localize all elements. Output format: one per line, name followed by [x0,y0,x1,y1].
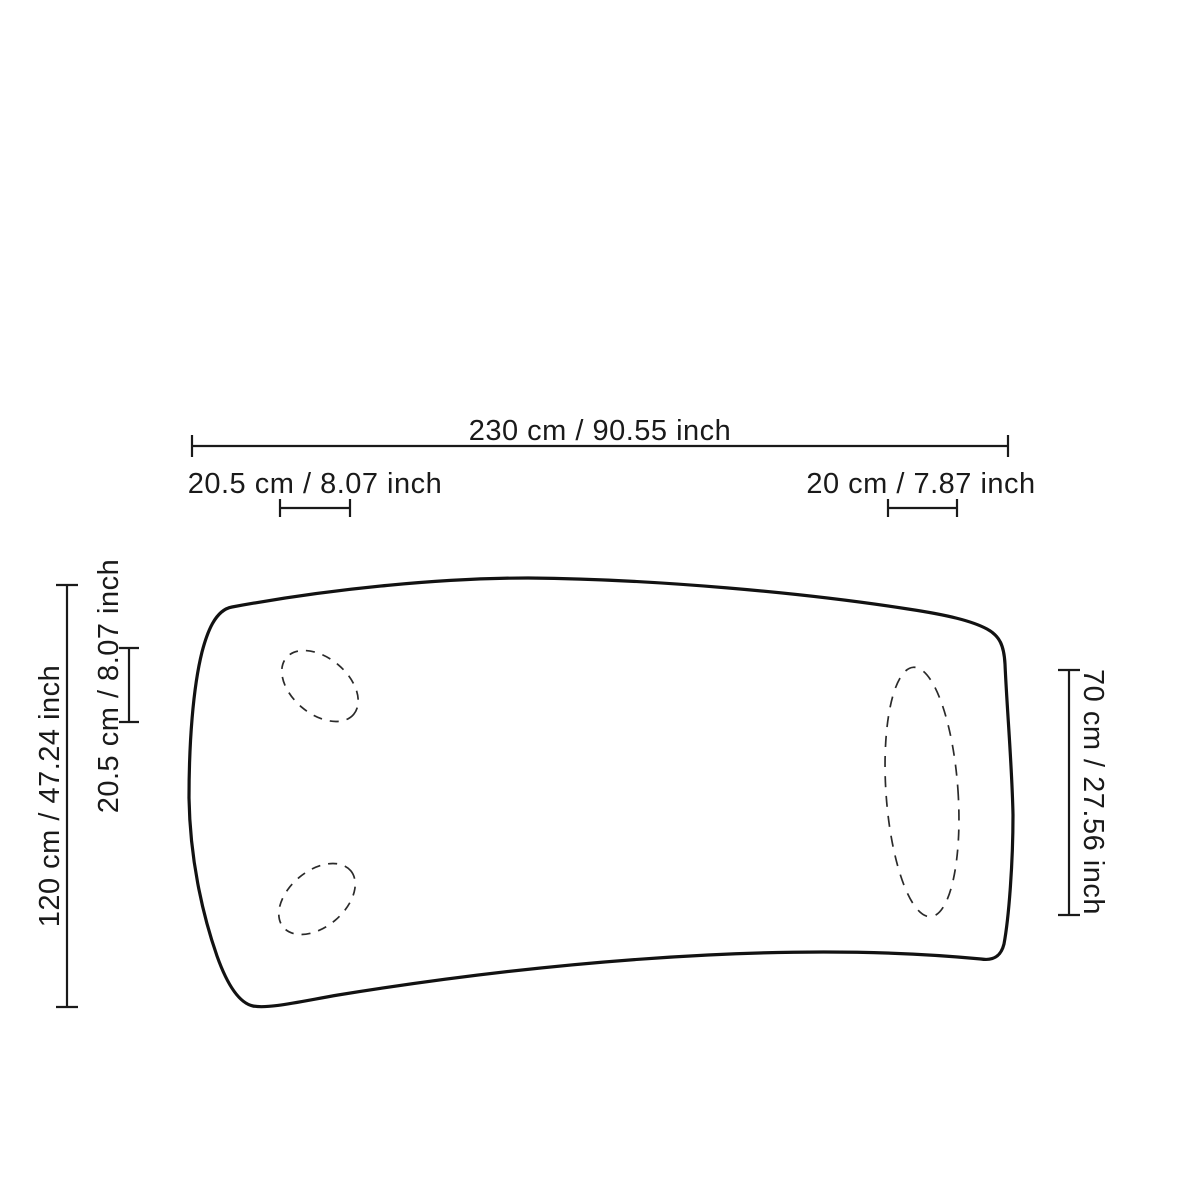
leg-marker-ellipse-bottom-left [265,849,368,948]
dimension-total-width: 230 cm / 90.55 inch [192,415,1008,457]
dimension-top-left-inset: 20.5 cm / 8.07 inch [188,468,443,517]
dimension-top-left-inset-label: 20.5 cm / 8.07 inch [188,468,443,500]
dimension-left-side-inset: 20.5 cm / 8.07 inch [93,559,139,814]
dimension-drawing-canvas: 230 cm / 90.55 inch 20.5 cm / 8.07 inch … [0,0,1200,1200]
dimension-total-width-label: 230 cm / 90.55 inch [469,415,732,447]
tabletop-dimension-diagram: 230 cm / 90.55 inch 20.5 cm / 8.07 inch … [0,0,1200,1200]
dimension-total-depth-label: 120 cm / 47.24 inch [34,665,66,928]
dimension-top-right-inset-label: 20 cm / 7.87 inch [806,468,1035,500]
dimension-right-zone-depth: 70 cm / 27.56 inch [1058,669,1109,915]
dimension-left-side-inset-label: 20.5 cm / 8.07 inch [93,559,125,814]
dimension-right-zone-depth-label: 70 cm / 27.56 inch [1077,669,1109,915]
leg-marker-ellipse-top-left [268,636,371,735]
dimension-top-right-inset: 20 cm / 7.87 inch [806,468,1035,517]
zone-marker-ellipse-right [877,665,966,919]
tabletop-outline [189,578,1013,1007]
dimension-total-depth: 120 cm / 47.24 inch [34,585,78,1007]
